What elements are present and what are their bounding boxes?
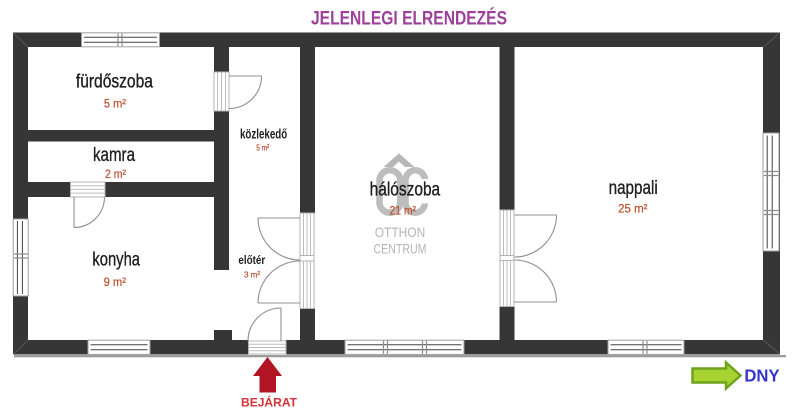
svg-text:előtér: előtér bbox=[238, 253, 265, 267]
svg-text:hálószoba: hálószoba bbox=[370, 180, 441, 201]
svg-text:OTTHON: OTTHON bbox=[375, 224, 426, 240]
svg-text:25 m²: 25 m² bbox=[618, 202, 647, 216]
svg-text:nappali: nappali bbox=[609, 178, 658, 199]
svg-text:BEJÁRAT: BEJÁRAT bbox=[241, 394, 297, 409]
svg-text:9 m²: 9 m² bbox=[104, 275, 126, 289]
svg-text:5 m²: 5 m² bbox=[104, 97, 126, 111]
svg-text:21 m²: 21 m² bbox=[390, 204, 416, 218]
svg-text:CENTRUM: CENTRUM bbox=[374, 241, 427, 257]
svg-text:JELENLEGI ELRENDEZÉS: JELENLEGI ELRENDEZÉS bbox=[311, 7, 507, 30]
svg-text:fürdőszoba: fürdőszoba bbox=[76, 72, 153, 93]
svg-text:közlekedő: közlekedő bbox=[240, 127, 287, 142]
svg-text:DNY: DNY bbox=[744, 366, 780, 386]
svg-text:5 m²: 5 m² bbox=[256, 143, 269, 153]
svg-text:2 m²: 2 m² bbox=[105, 167, 126, 181]
svg-text:kamra: kamra bbox=[93, 145, 135, 166]
svg-text:konyha: konyha bbox=[92, 250, 140, 271]
svg-text:3 m²: 3 m² bbox=[244, 269, 260, 279]
